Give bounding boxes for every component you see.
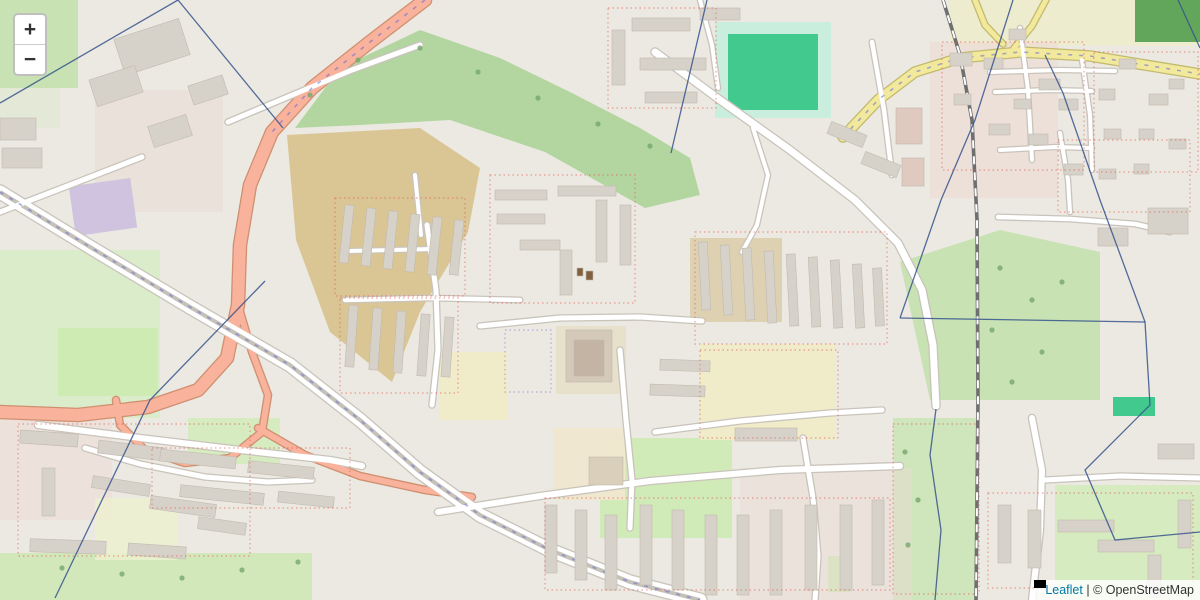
zoom-out-button[interactable]: − xyxy=(15,45,45,74)
attribution-bar: Leaflet | © OpenStreetMap xyxy=(1034,580,1200,600)
zoom-control: + − xyxy=(13,13,47,76)
map-canvas[interactable]: + − Leaflet | © OpenStreetMap xyxy=(0,0,1200,600)
zoom-in-button[interactable]: + xyxy=(15,15,45,45)
attribution-separator: | xyxy=(1083,583,1093,597)
leaflet-link[interactable]: Leaflet xyxy=(1045,583,1083,597)
osm-credit: © OpenStreetMap xyxy=(1093,583,1194,597)
map-tiles xyxy=(0,0,1200,600)
